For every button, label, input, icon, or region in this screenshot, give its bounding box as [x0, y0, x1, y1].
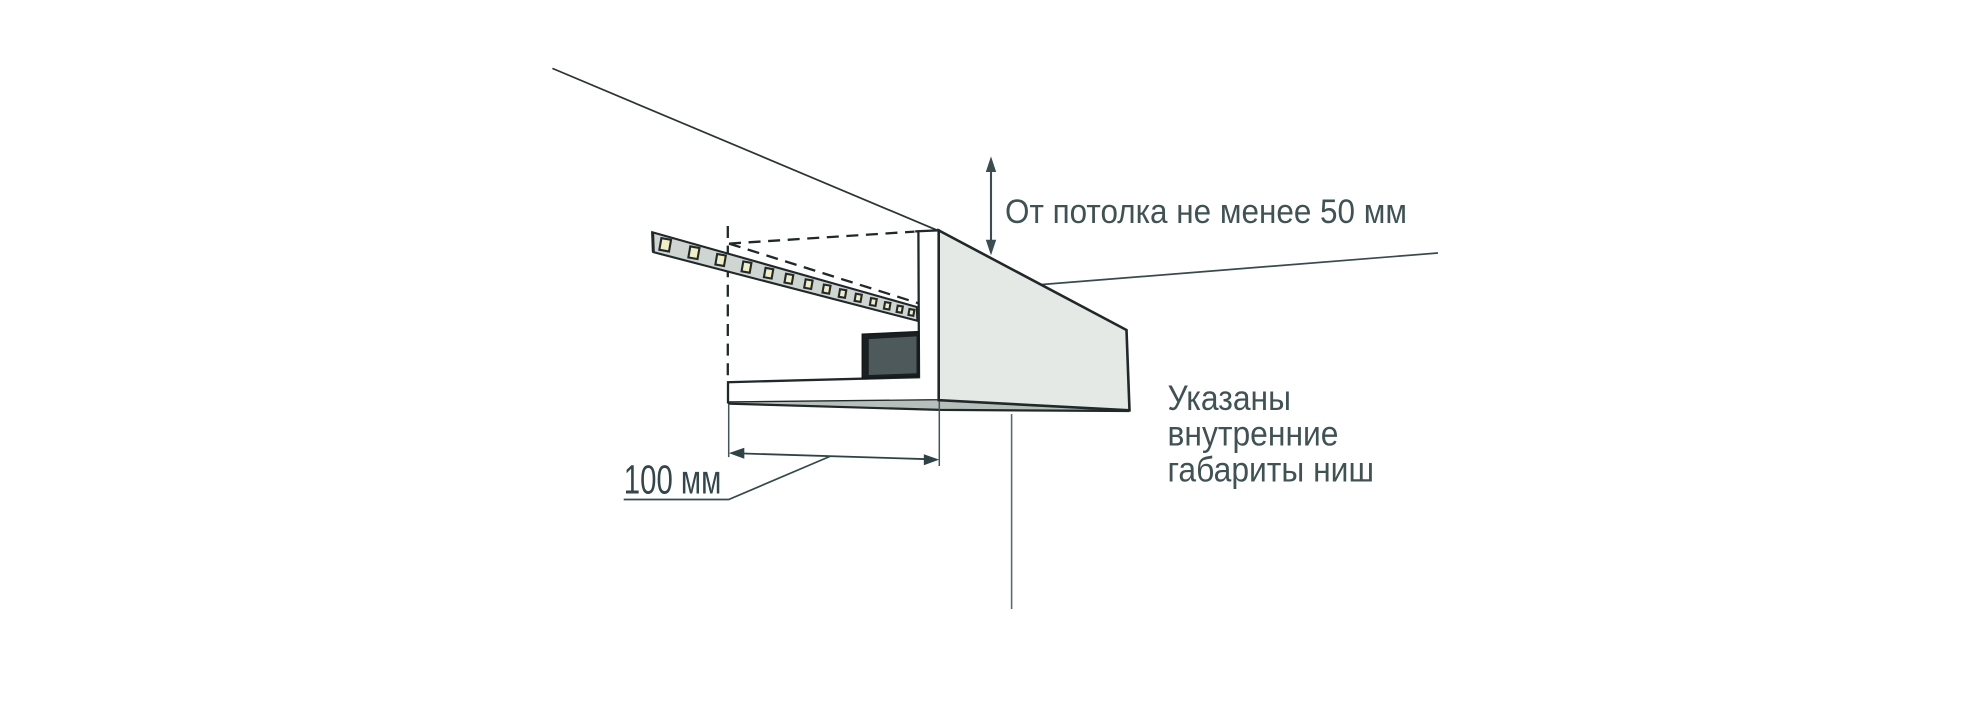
svg-text:От потолка не менее 50 мм: От потолка не менее 50 мм [1005, 193, 1407, 231]
svg-text:Указаны: Указаны [1168, 379, 1292, 418]
svg-text:габариты ниш: габариты ниш [1168, 450, 1375, 489]
svg-text:внутренние: внутренние [1168, 415, 1339, 454]
svg-text:100 мм: 100 мм [624, 457, 722, 503]
